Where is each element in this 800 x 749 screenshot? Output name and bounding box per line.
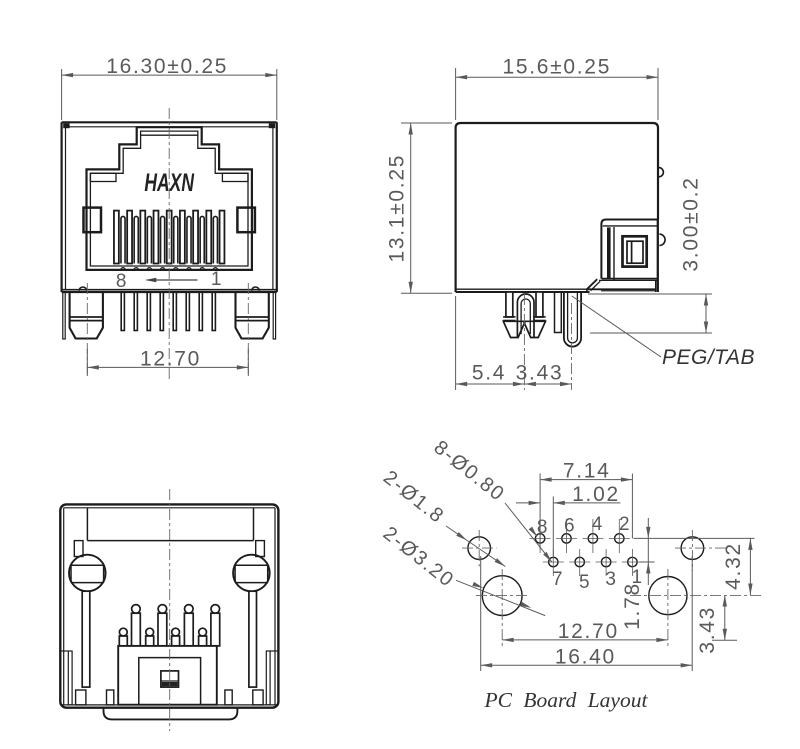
svg-text:PEG/TAB: PEG/TAB bbox=[662, 346, 755, 369]
svg-text:3: 3 bbox=[605, 569, 617, 590]
svg-text:12.70: 12.70 bbox=[558, 620, 619, 643]
svg-text:1: 1 bbox=[211, 269, 223, 290]
svg-text:4: 4 bbox=[592, 514, 604, 535]
svg-text:16.40: 16.40 bbox=[555, 646, 616, 669]
svg-text:1.78: 1.78 bbox=[621, 582, 644, 630]
svg-text:PC Board Layout: PC Board Layout bbox=[484, 688, 649, 712]
svg-text:15.6±0.25: 15.6±0.25 bbox=[503, 56, 612, 79]
svg-text:1.02: 1.02 bbox=[572, 483, 620, 506]
svg-text:16.30±0.25: 16.30±0.25 bbox=[106, 55, 228, 78]
svg-text:8: 8 bbox=[537, 517, 549, 538]
svg-text:4.32: 4.32 bbox=[722, 542, 745, 590]
svg-text:7.14: 7.14 bbox=[563, 460, 611, 483]
svg-text:2: 2 bbox=[619, 514, 631, 535]
svg-text:13.1±0.25: 13.1±0.25 bbox=[386, 154, 409, 263]
svg-text:3.00±0.2: 3.00±0.2 bbox=[680, 176, 703, 271]
svg-text:5: 5 bbox=[579, 572, 591, 593]
svg-text:8: 8 bbox=[116, 271, 128, 292]
svg-text:12.70: 12.70 bbox=[140, 348, 201, 371]
svg-text:3.43: 3.43 bbox=[696, 606, 719, 654]
svg-text:3.43: 3.43 bbox=[516, 362, 564, 385]
svg-text:7: 7 bbox=[552, 569, 564, 590]
svg-text:6: 6 bbox=[564, 516, 576, 537]
svg-text:5.4: 5.4 bbox=[472, 362, 506, 385]
